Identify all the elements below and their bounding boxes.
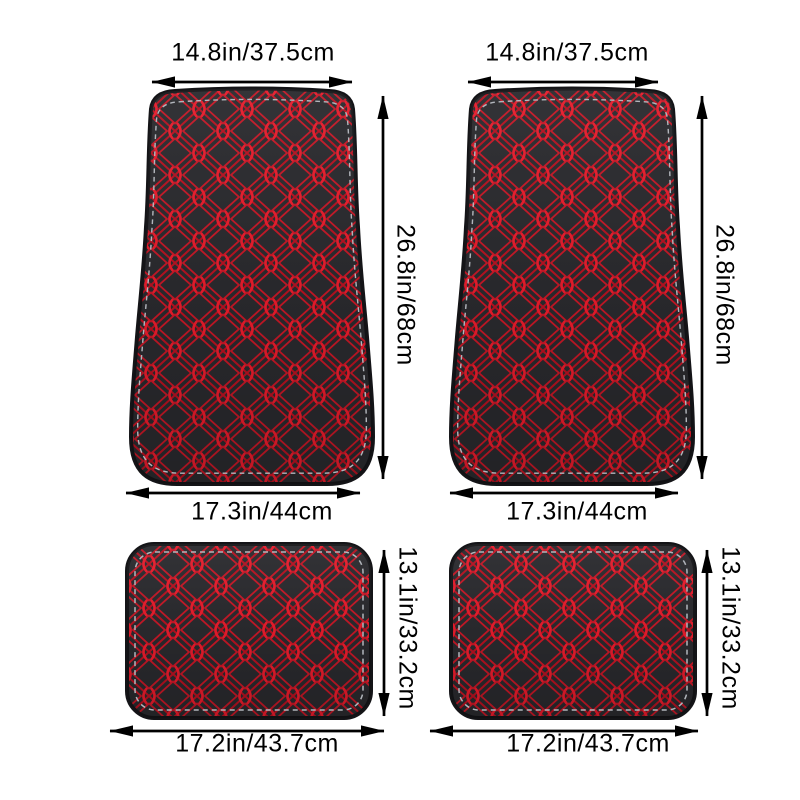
front-floor-mat-right [451, 89, 693, 485]
rear-floor-mat-left [127, 544, 371, 718]
front-left-height-label: 26.8in/68cm [391, 224, 420, 366]
front-left-bottom-width-label: 17.3in/44cm [191, 498, 333, 527]
front-left-top-width-label: 14.8in/37.5cm [171, 39, 335, 68]
rear-right-height-label: 13.1in/33.2cm [716, 546, 745, 710]
front-right-bottom-width-label: 17.3in/44cm [506, 498, 648, 527]
front-right-height-label: 26.8in/68cm [710, 224, 739, 366]
rear-right-bottom-width-label: 17.2in/43.7cm [506, 730, 670, 759]
product-dimension-image: 14.8in/37.5cm 26.8in/68cm 17.3in/44cm 14… [0, 0, 800, 800]
front-right-top-width-label: 14.8in/37.5cm [485, 39, 649, 68]
rear-floor-mat-right [451, 544, 695, 718]
rear-left-height-label: 13.1in/33.2cm [393, 546, 422, 710]
rear-left-bottom-width-label: 17.2in/43.7cm [175, 730, 339, 759]
front-floor-mat-left [131, 89, 373, 485]
